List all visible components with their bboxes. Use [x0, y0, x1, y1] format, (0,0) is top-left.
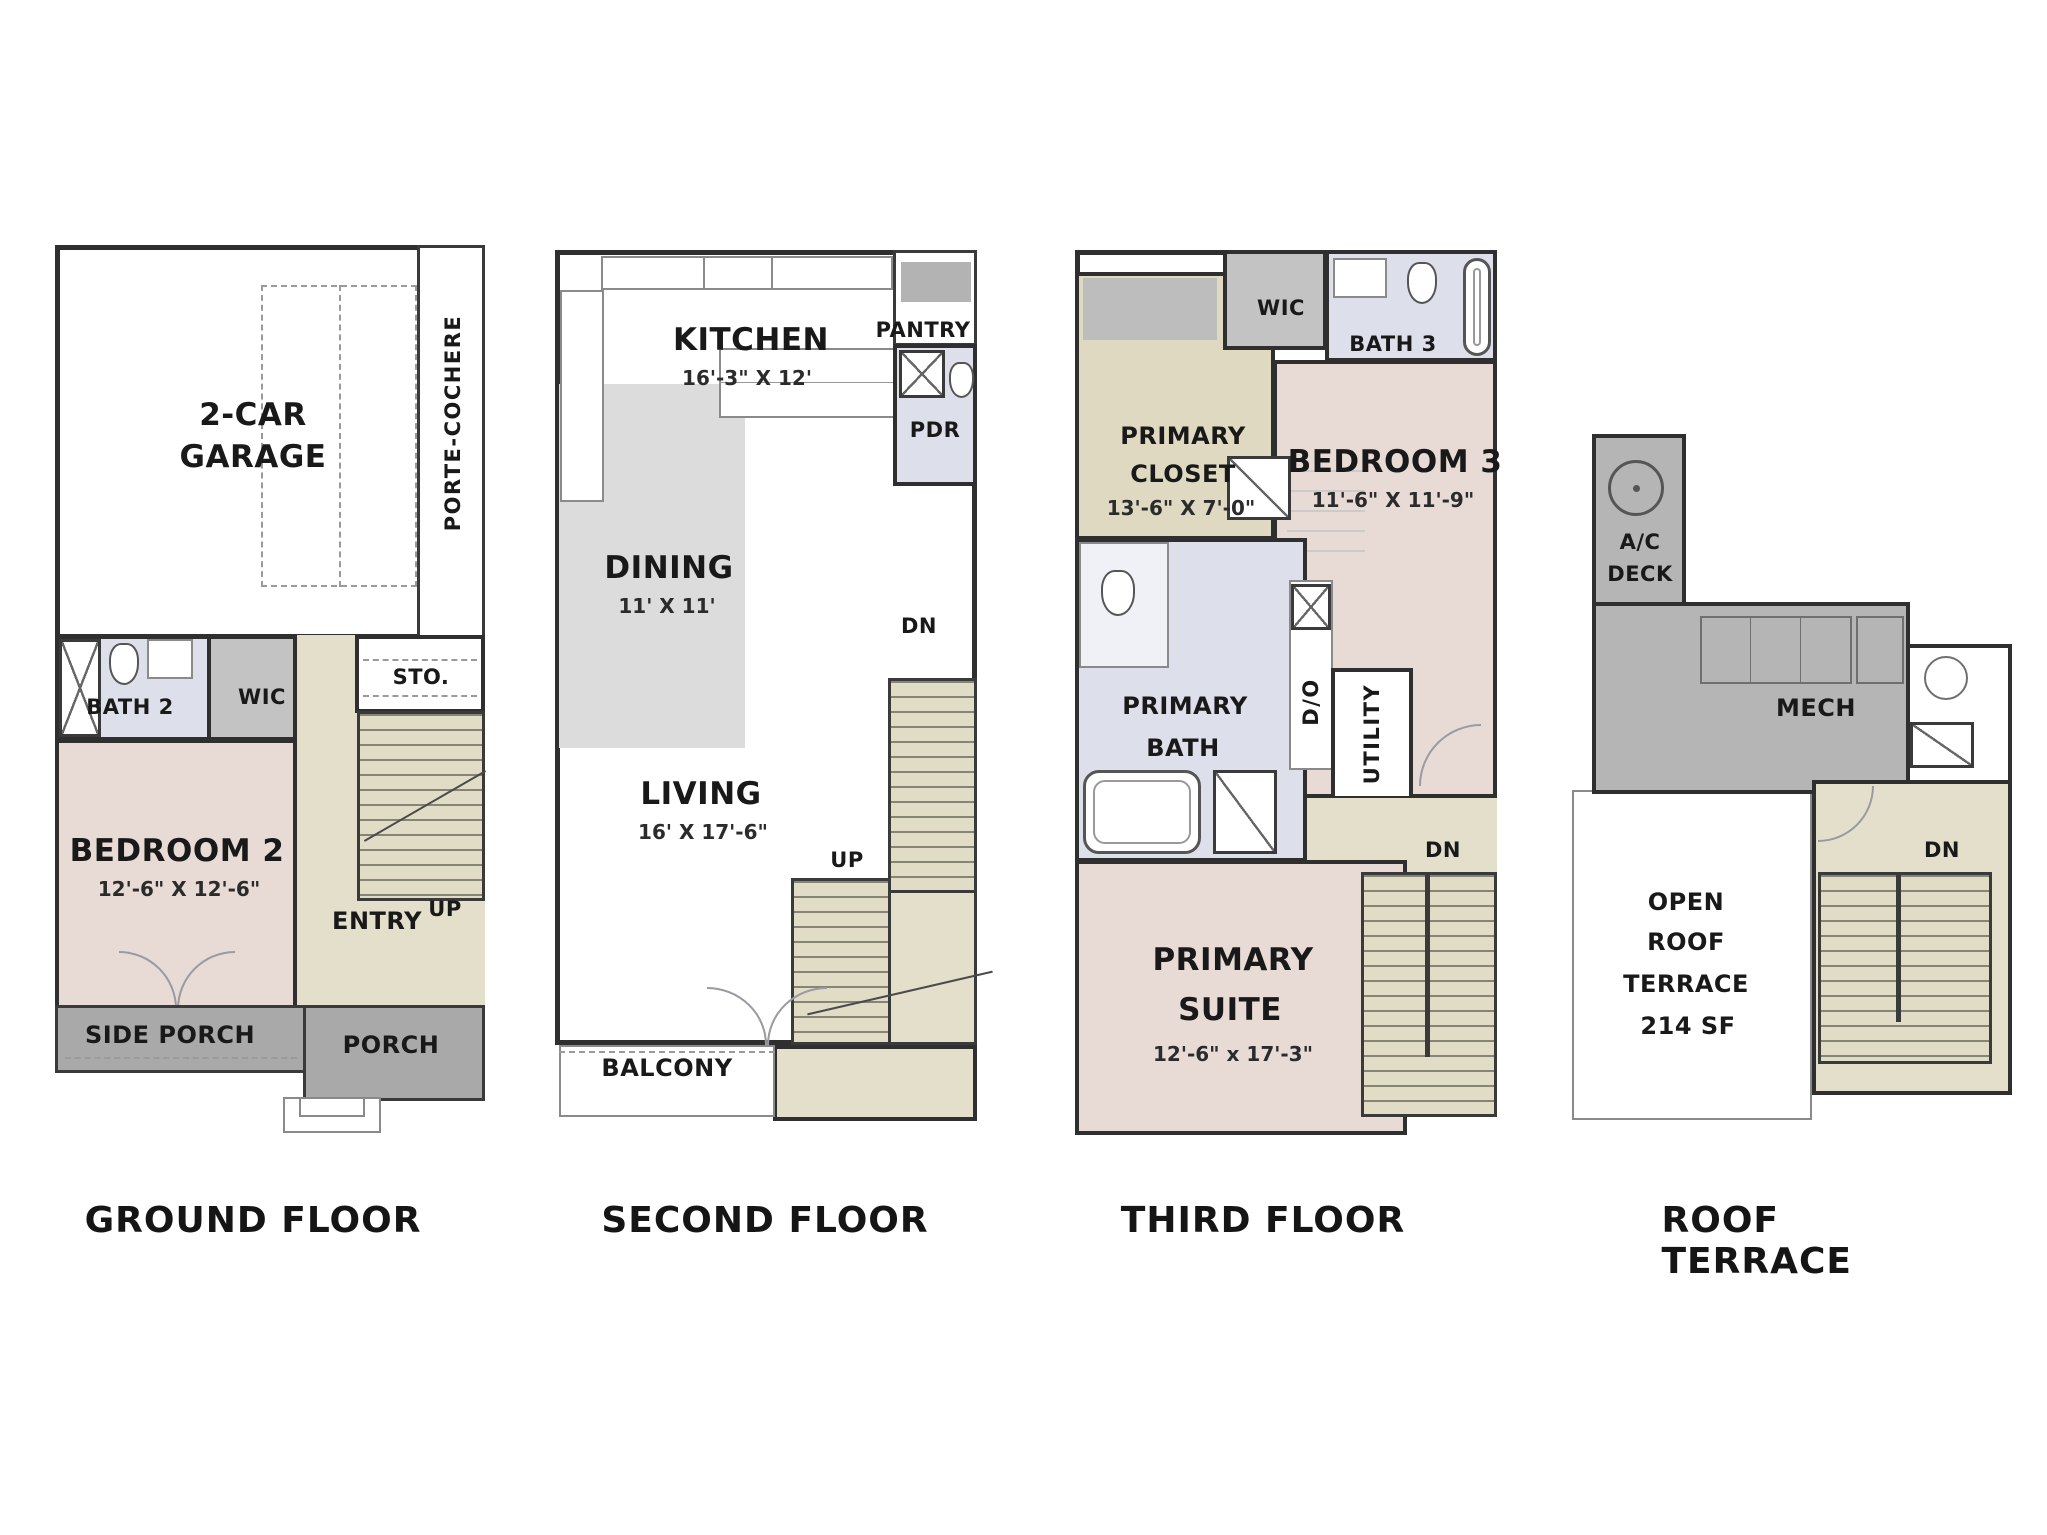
bedroom-2-room	[55, 739, 297, 1009]
terrace-label: ROOF	[1647, 928, 1725, 956]
bedroom-2-dim: 12'-6" X 12'-6"	[98, 877, 261, 901]
cabinet-icon	[1291, 584, 1331, 630]
bedroom-3-label: BEDROOM 3	[1288, 444, 1503, 480]
kitchen-dim: 16'-3" X 12'	[682, 366, 812, 390]
third-floor-plan: D/O UTILITY WIC BATH 3 PRIMARY CLOSET 13…	[1075, 250, 1500, 1145]
garage-center-line	[339, 285, 341, 587]
primary-closet-dim: 13'-6" X 7'-0"	[1107, 496, 1256, 520]
dn-label: DN	[901, 614, 937, 638]
toilet-icon	[1101, 570, 1135, 616]
ac-deck-label: A/C	[1620, 530, 1661, 554]
cabinet-icon	[899, 350, 945, 398]
sink-icon	[1333, 258, 1387, 298]
stairs-down-run	[888, 678, 977, 893]
shower-icon	[1910, 722, 1974, 768]
side-porch-label: SIDE PORCH	[85, 1021, 255, 1049]
vent-circle-icon	[1924, 656, 1968, 700]
equipment-line	[1800, 616, 1801, 684]
ground-floor-plan: 2-CAR GARAGE PORTE-COCHERE BATH 2 WIC ST…	[55, 245, 487, 1140]
bath-2-label: BATH 2	[86, 695, 173, 719]
second-floor-title: SECOND FLOOR	[601, 1200, 928, 1241]
range-icon	[703, 256, 773, 290]
primary-bath-label: PRIMARY	[1122, 692, 1248, 720]
dn-label: DN	[1425, 838, 1461, 862]
stairs-down	[1818, 872, 1992, 1064]
dining-label: DINING	[604, 550, 733, 586]
porch-edge-line	[65, 1057, 297, 1059]
primary-suite-dim: 12'-6" x 17'-3"	[1153, 1042, 1313, 1066]
primary-bath-label: BATH	[1146, 734, 1219, 762]
wic-label: WIC	[238, 685, 286, 709]
stairwell-lower-block	[773, 1045, 977, 1121]
second-floor-plan: KITCHEN 16'-3" X 12' PANTRY PDR DINING 1…	[555, 250, 980, 1130]
stair-rail	[1425, 872, 1430, 1057]
closet-wardrobe	[1083, 278, 1217, 340]
up-label: UP	[830, 848, 863, 872]
mech-equipment	[1856, 616, 1904, 684]
pantry-label: PANTRY	[876, 318, 971, 342]
storage-shelf-line	[363, 659, 477, 661]
kitchen-counter-left	[560, 290, 604, 502]
porch-label: PORCH	[343, 1031, 440, 1059]
storage-label: STO.	[393, 665, 450, 689]
tub-icon	[1463, 258, 1491, 356]
up-label: UP	[428, 897, 461, 921]
floor-plan-sheet: 2-CAR GARAGE PORTE-COCHERE BATH 2 WIC ST…	[0, 0, 2047, 1535]
dn-label: DN	[1924, 838, 1960, 862]
porte-cochere-label: PORTE-COCHERE	[441, 315, 465, 531]
laundry-label: D/O	[1299, 678, 1323, 725]
vanity-icon	[147, 639, 193, 679]
garage-label: 2-CAR	[199, 397, 307, 433]
toilet-icon	[109, 643, 139, 685]
mech-label: MECH	[1776, 694, 1856, 722]
porch-step	[299, 1097, 365, 1117]
terrace-label: TERRACE	[1623, 970, 1749, 998]
terrace-label: 214 SF	[1640, 1012, 1735, 1040]
living-dim: 16' X 17'-6"	[638, 820, 768, 844]
ac-deck-label: DECK	[1607, 562, 1672, 586]
wic-label: WIC	[1257, 296, 1305, 320]
living-label: LIVING	[640, 776, 761, 812]
primary-closet-label: CLOSET	[1130, 460, 1236, 488]
ground-floor-title: GROUND FLOOR	[85, 1200, 422, 1241]
entry-label: ENTRY	[332, 907, 422, 935]
roof-terrace-title: ROOF TERRACE	[1662, 1200, 1919, 1282]
shower-icon	[1213, 770, 1277, 854]
balcony-line	[559, 1051, 775, 1053]
mech-equipment	[1700, 616, 1852, 684]
bedroom-3-dim: 11'-6" X 11'-9"	[1312, 488, 1475, 512]
stair-landing	[888, 890, 977, 1045]
roof-terrace-plan: A/C DECK MECH DN OPEN ROOF TERRACE 214 S…	[1590, 430, 2025, 1135]
shower-icon	[59, 639, 101, 737]
utility-label: UTILITY	[1360, 684, 1384, 784]
dining-dim: 11' X 11'	[618, 594, 715, 618]
primary-suite-label: SUITE	[1178, 992, 1282, 1028]
kitchen-label: KITCHEN	[673, 322, 829, 358]
terrace-label: OPEN	[1648, 888, 1724, 916]
primary-closet-label: PRIMARY	[1120, 422, 1246, 450]
stair-rail	[1896, 872, 1901, 1022]
primary-suite-label: PRIMARY	[1152, 942, 1313, 978]
ac-fan-icon	[1608, 460, 1664, 516]
balcony-label: BALCONY	[601, 1054, 732, 1082]
equipment-line	[1750, 616, 1751, 684]
pdr-label: PDR	[910, 418, 961, 442]
garage-label: GARAGE	[180, 439, 327, 475]
toilet-icon	[1407, 262, 1437, 304]
tub-icon	[1083, 770, 1201, 854]
third-floor-title: THIRD FLOOR	[1121, 1200, 1405, 1241]
bedroom-2-label: BEDROOM 2	[70, 833, 285, 869]
pantry-shelves	[901, 262, 971, 302]
toilet-icon	[949, 362, 974, 398]
bath-3-label: BATH 3	[1349, 332, 1436, 356]
storage-shelf-line	[363, 695, 477, 697]
